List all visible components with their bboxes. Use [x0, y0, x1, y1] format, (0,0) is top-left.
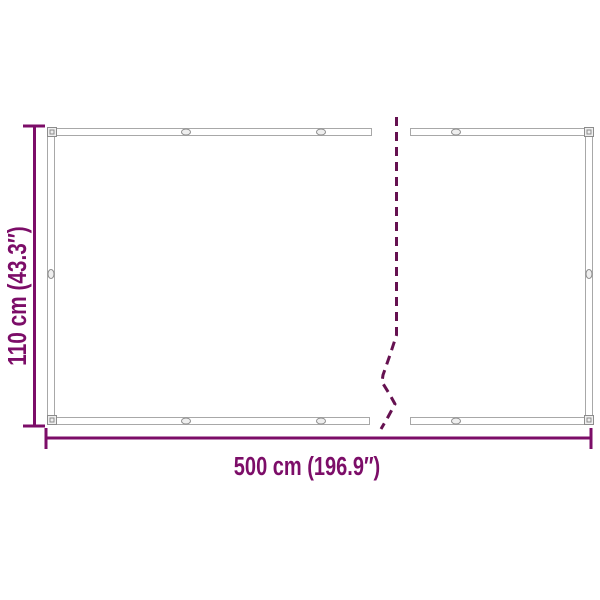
width-label: 500 cm (196.9″): [234, 451, 380, 480]
corner-bracket-bottom-left: [48, 416, 57, 425]
corner-brackets: [48, 128, 594, 425]
grommet: [317, 418, 326, 424]
top-rail-right: [410, 128, 592, 136]
height-label: 110 cm (43.3″): [3, 226, 32, 365]
corner-bracket-top-left: [48, 128, 57, 137]
grommet: [182, 129, 191, 135]
corner-bracket-bottom-right: [585, 416, 594, 425]
grommet: [452, 129, 461, 135]
grommets: [48, 129, 592, 424]
grommet: [586, 270, 592, 279]
grommet: [48, 270, 54, 279]
grommet: [452, 418, 461, 424]
panel-frame: [47, 128, 593, 425]
grommet: [182, 418, 191, 424]
bottom-rail-right: [410, 417, 592, 425]
product-dimension-diagram: 110 cm (43.3″) 500 cm (196.9″): [0, 0, 600, 600]
grommet: [317, 129, 326, 135]
width-dimension-line: [45, 428, 592, 449]
corner-bracket-top-right: [585, 128, 594, 137]
diagram-canvas: 110 cm (43.3″) 500 cm (196.9″): [0, 0, 600, 600]
break-line: [381, 117, 397, 429]
